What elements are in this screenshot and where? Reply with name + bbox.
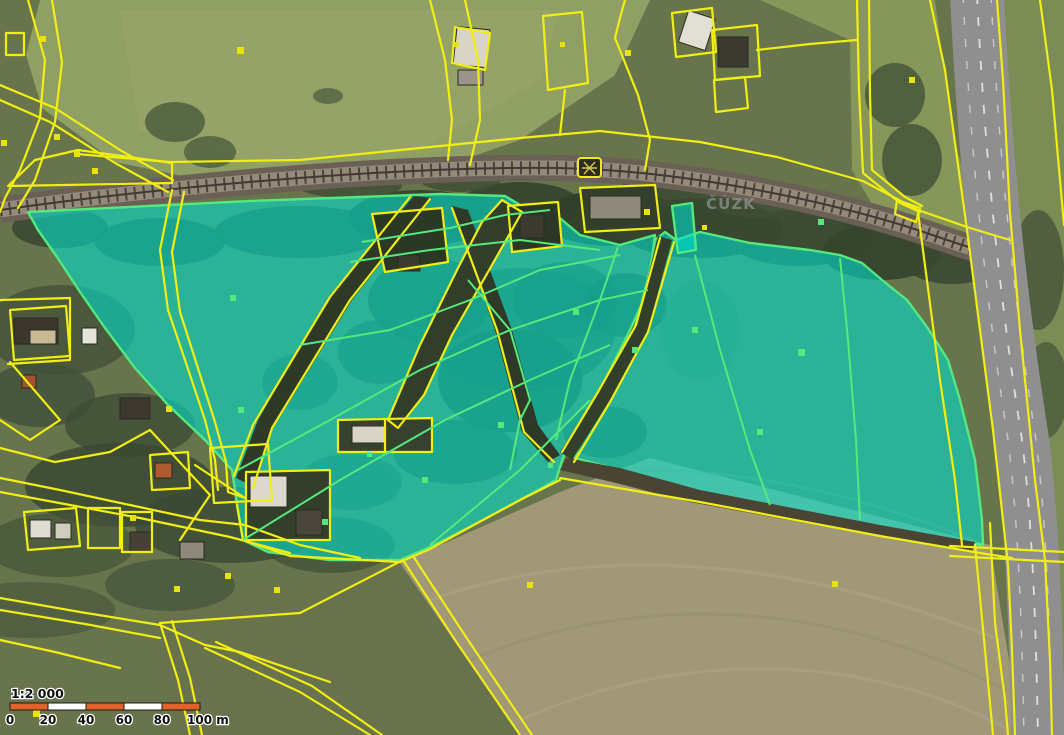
svg-text:0: 0	[6, 713, 14, 727]
svg-text:20: 20	[40, 713, 57, 727]
scalebar-segments	[10, 703, 200, 710]
svg-text:100 m: 100 m	[187, 713, 229, 727]
map-canvas[interactable]: ČÚZK 1:2 000 0 20 40 60 80 100 m	[0, 0, 1064, 735]
scalebar-ratio-label: 1:2 000	[11, 686, 64, 701]
map-viewport[interactable]: ČÚZK 1:2 000 0 20 40 60 80 100 m	[0, 0, 1064, 735]
scalebar-ticks: 0 20 40 60 80 100 m	[6, 713, 229, 727]
svg-text:80: 80	[154, 713, 171, 727]
cuzk-watermark: ČÚZK	[706, 194, 756, 213]
svg-text:40: 40	[78, 713, 95, 727]
railway-crossing-symbol	[578, 158, 601, 177]
svg-text:60: 60	[116, 713, 133, 727]
